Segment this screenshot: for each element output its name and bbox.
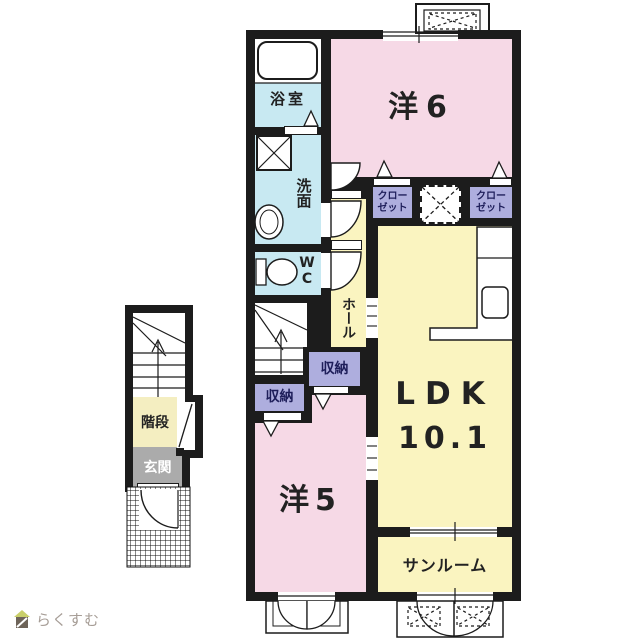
stairs-area-main: [255, 303, 307, 377]
room-label-entrance: 玄関: [133, 447, 182, 487]
door-opening: [321, 203, 331, 237]
room-label-ldk-size: 10.1: [378, 420, 512, 456]
door-opening: [417, 592, 493, 601]
closet-left: クローゼット: [373, 187, 412, 218]
ac-unit-icon: [408, 607, 489, 626]
balcony-sunroom: [397, 601, 503, 637]
closet-label: クローゼット: [474, 191, 508, 214]
site-logo: らくすむ: [12, 608, 100, 630]
room-label-wc: WC: [296, 246, 318, 296]
door-bar-bath: [284, 126, 318, 135]
storage-hall: 収納: [309, 352, 360, 386]
storage-door-bar: [313, 386, 349, 394]
room-label-ldk: LDK: [378, 376, 512, 412]
ac-unit-icon: [429, 13, 476, 29]
wall: [246, 244, 331, 252]
wall: [512, 30, 521, 601]
closet-right: クローゼット: [470, 187, 512, 218]
floor-plan: クローゼット クローゼット 収納 収納: [0, 0, 640, 640]
wall: [182, 450, 190, 490]
room-label-sunroom: サンルーム: [378, 553, 512, 575]
storage-western5: 収納: [255, 384, 304, 411]
storage-label: 収納: [321, 361, 349, 377]
sliding-door-opening: [366, 437, 378, 480]
window-opening: [383, 28, 458, 41]
balcony-west5: [266, 601, 348, 633]
door-opening: [177, 402, 195, 450]
door-opening: [278, 592, 335, 601]
closet-label: クローゼット: [376, 191, 410, 214]
door-bar: [331, 190, 362, 199]
room-label-hall: ホール: [336, 284, 360, 352]
wall: [125, 305, 193, 313]
staircase-icon: [133, 317, 185, 397]
room-label-western5: 洋5: [255, 478, 366, 516]
house-icon: [12, 608, 32, 630]
room-label-stairs: 階段: [133, 397, 177, 447]
sliding-door-opening: [366, 298, 378, 338]
closet-door-bar: [489, 178, 512, 186]
wall: [246, 30, 255, 601]
wall: [246, 295, 331, 303]
storage-label: 収納: [266, 389, 294, 405]
door-opening: [321, 253, 331, 288]
storage-door-bar: [263, 412, 302, 421]
hatch-box: [420, 185, 461, 224]
room-label-western6: 洋6: [331, 86, 512, 122]
closet-door-bar: [373, 178, 411, 186]
wall: [366, 226, 378, 592]
window-opening: [410, 527, 497, 537]
room-label-bath: 浴室: [255, 88, 321, 108]
logo-text: らくすむ: [36, 609, 100, 630]
porch-hatch: [127, 487, 190, 567]
bathtub-icon: [255, 42, 321, 83]
room-label-wash: 洗面: [292, 166, 316, 220]
wall: [185, 305, 193, 403]
wall: [125, 305, 133, 492]
door-bar: [331, 240, 362, 250]
